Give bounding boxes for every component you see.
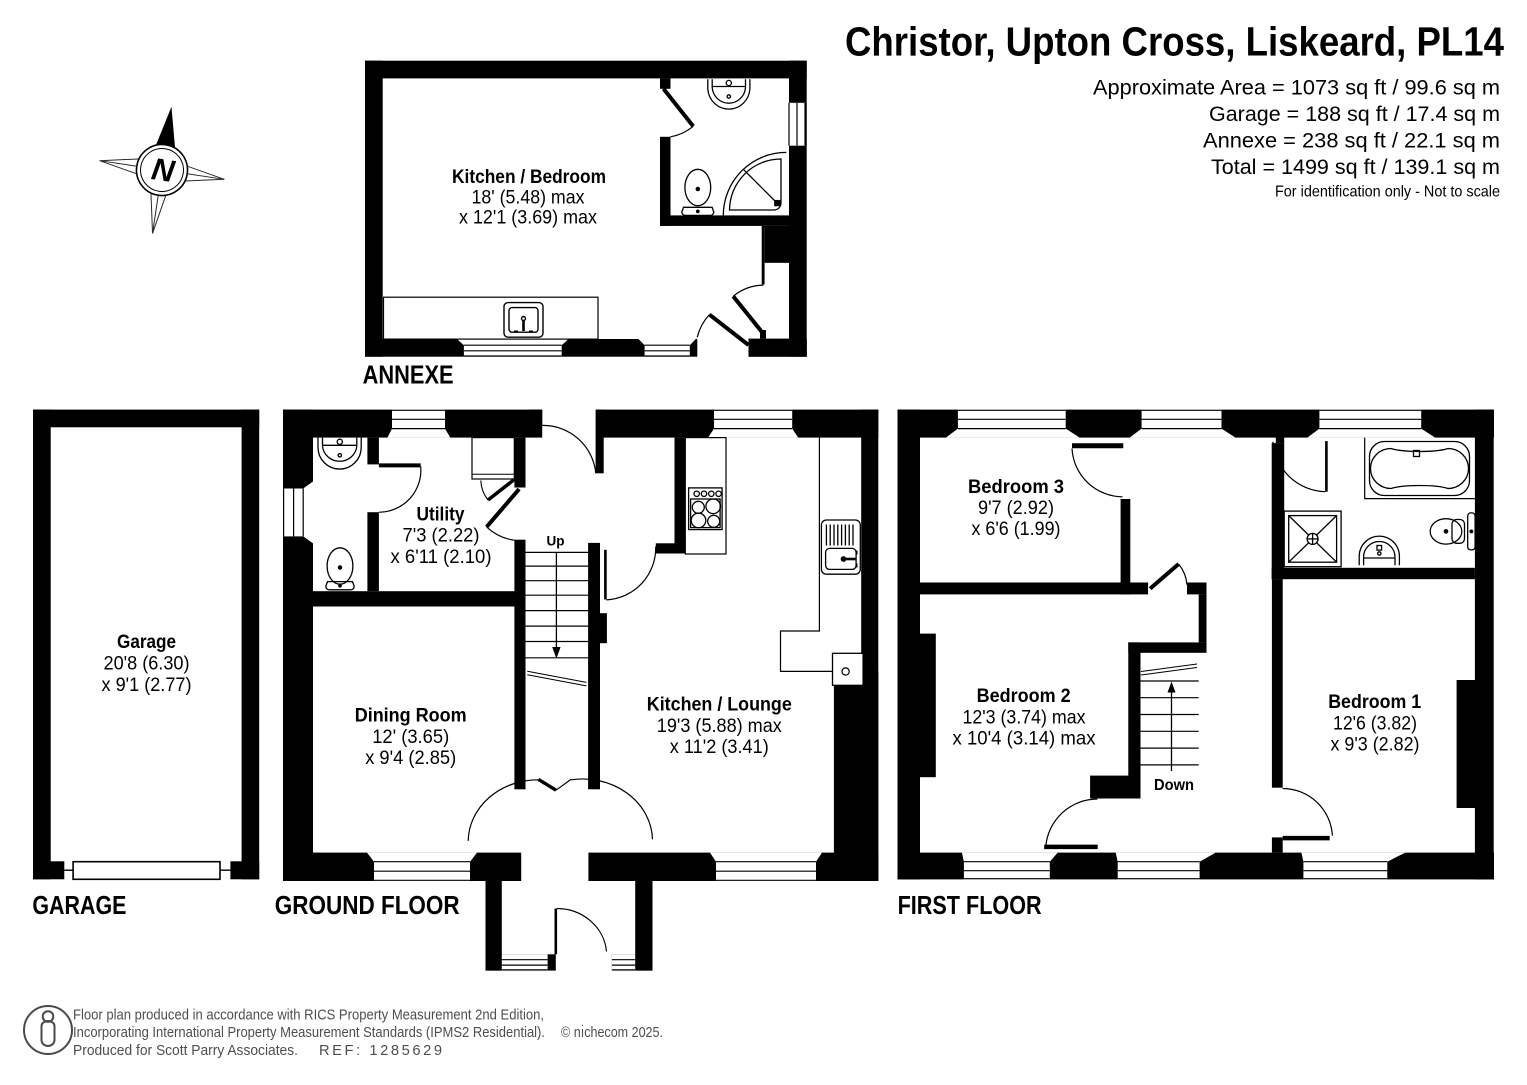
svg-text:Total = 1499 sq ft / 139.1 sq: Total = 1499 sq ft / 139.1 sq m [1211, 154, 1500, 179]
svg-text:Garage = 188 sq ft / 17.4 sq m: Garage = 188 sq ft / 17.4 sq m [1209, 101, 1500, 126]
svg-text:ANNEXE: ANNEXE [363, 362, 454, 390]
svg-text:GROUND FLOOR: GROUND FLOOR [275, 892, 460, 920]
svg-text:x 10'4 (3.14) max: x 10'4 (3.14) max [953, 728, 1096, 750]
svg-text:Bedroom 1: Bedroom 1 [1328, 691, 1421, 713]
svg-text:20'8 (6.30): 20'8 (6.30) [104, 653, 190, 675]
svg-text:19'3 (5.88) max: 19'3 (5.88) max [657, 715, 782, 737]
svg-text:9'7 (2.92): 9'7 (2.92) [978, 497, 1054, 519]
svg-text:Approximate Area = 1073 sq ft: Approximate Area = 1073 sq ft / 99.6 sq … [1093, 75, 1500, 100]
svg-text:For identification only - Not: For identification only - Not to scale [1275, 183, 1500, 200]
svg-text:18' (5.48) max: 18' (5.48) max [472, 186, 585, 208]
svg-text:x 6'11 (2.10): x 6'11 (2.10) [391, 546, 492, 568]
svg-text:x 9'1 (2.77): x 9'1 (2.77) [102, 674, 192, 696]
svg-text:Christor, Upton Cross, Liskear: Christor, Upton Cross, Liskeard, PL14 [845, 18, 1504, 64]
svg-text:Bedroom 3: Bedroom 3 [968, 476, 1064, 498]
svg-text:FIRST FLOOR: FIRST FLOOR [898, 892, 1042, 920]
svg-text:Utility: Utility [417, 504, 465, 526]
svg-text:GARAGE: GARAGE [32, 892, 126, 920]
svg-text:Garage: Garage [117, 631, 176, 653]
svg-text:Annexe = 238 sq ft / 22.1 sq m: Annexe = 238 sq ft / 22.1 sq m [1203, 128, 1500, 153]
svg-text:Down: Down [1154, 777, 1194, 794]
svg-text:Kitchen / Bedroom: Kitchen / Bedroom [452, 166, 606, 188]
svg-text:x 9'3 (2.82): x 9'3 (2.82) [1331, 734, 1420, 756]
svg-text:x 12'1 (3.69) max: x 12'1 (3.69) max [459, 207, 597, 229]
svg-text:Dining Room: Dining Room [355, 705, 467, 727]
svg-text:12' (3.65): 12' (3.65) [372, 726, 449, 748]
svg-text:Incorporating International Pr: Incorporating International Property Mea… [73, 1025, 545, 1041]
svg-text:12'6 (3.82): 12'6 (3.82) [1333, 712, 1417, 734]
svg-text:REF: 1285629: REF: 1285629 [319, 1043, 442, 1059]
svg-text:© nı̇checom 2025.: © nı̇checom 2025. [561, 1024, 663, 1041]
svg-text:Kitchen / Lounge: Kitchen / Lounge [647, 694, 792, 716]
svg-text:Up: Up [547, 534, 565, 549]
svg-text:12'3 (3.74) max: 12'3 (3.74) max [963, 706, 1086, 728]
svg-text:x 9'4 (2.85): x 9'4 (2.85) [365, 747, 456, 769]
svg-text:Produced for Scott Parry Assoc: Produced for Scott Parry Associates. [73, 1043, 298, 1059]
svg-text:x 6'6 (1.99): x 6'6 (1.99) [972, 518, 1061, 540]
svg-text:x 11'2 (3.41): x 11'2 (3.41) [670, 736, 769, 758]
svg-text:Floor plan produced in accorda: Floor plan produced in accordance with R… [73, 1008, 544, 1024]
svg-text:7'3 (2.22): 7'3 (2.22) [403, 525, 480, 547]
svg-text:Bedroom 2: Bedroom 2 [977, 685, 1071, 707]
